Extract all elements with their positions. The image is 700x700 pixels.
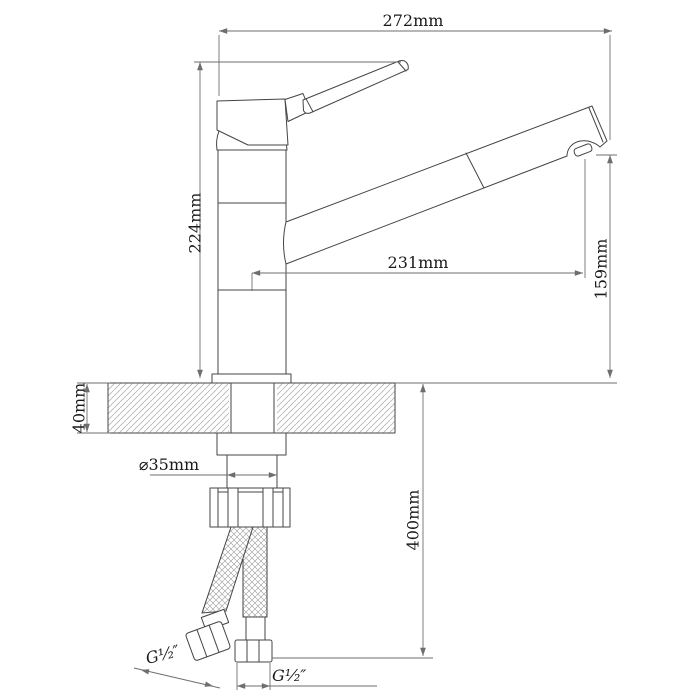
dim-label-hose-length: 400mm (404, 490, 423, 551)
dimension-159: 159mm (592, 155, 618, 378)
dim-label-spout-outlet-height: 159mm (592, 239, 611, 300)
countertop-hatch-right (277, 383, 395, 433)
left-hose-hex-nut (185, 621, 231, 661)
threaded-shank (227, 455, 277, 488)
countertop-hatch-left (108, 383, 229, 433)
head-joint-arc (217, 131, 219, 150)
faucet-handle (285, 61, 408, 122)
countertop-section (108, 383, 617, 433)
right-hose-hex-nut (235, 640, 272, 662)
dimension-40: 40mm (70, 383, 111, 434)
faucet-technical-drawing: 272mm 224mm 231mm 159mm 40mm 400mm ⌀35mm (0, 0, 700, 700)
head-joint-right (287, 145, 288, 150)
mounting-collar (217, 433, 286, 455)
dim-label-hole-diameter: ⌀35mm (139, 455, 199, 474)
mounting-shank-through-counter (231, 383, 274, 433)
thread-label-left: G¹⁄₂″ (144, 641, 182, 668)
dim-label-overall-width: 272mm (383, 11, 444, 30)
handle-lever (303, 61, 408, 114)
dim-label-height-above-counter: 224mm (186, 193, 205, 254)
dimension-thread-right: G¹⁄₂″ (237, 663, 377, 690)
dim-label-spout-reach: 231mm (388, 253, 449, 272)
faucet (210, 61, 607, 528)
mounting-nut (210, 488, 290, 527)
technical-drawing-page: 272mm 224mm 231mm 159mm 40mm 400mm ⌀35mm (0, 0, 700, 700)
faucet-spout (284, 106, 608, 264)
thread-label-right: G¹⁄₂″ (272, 666, 306, 685)
mounting-flange (212, 374, 291, 383)
faucet-head (217, 99, 288, 145)
faucet-body (218, 150, 286, 374)
right-hose-ferrule (246, 617, 265, 640)
spout-aerator (573, 143, 593, 157)
dim-label-counter-thickness: 40mm (70, 383, 89, 434)
